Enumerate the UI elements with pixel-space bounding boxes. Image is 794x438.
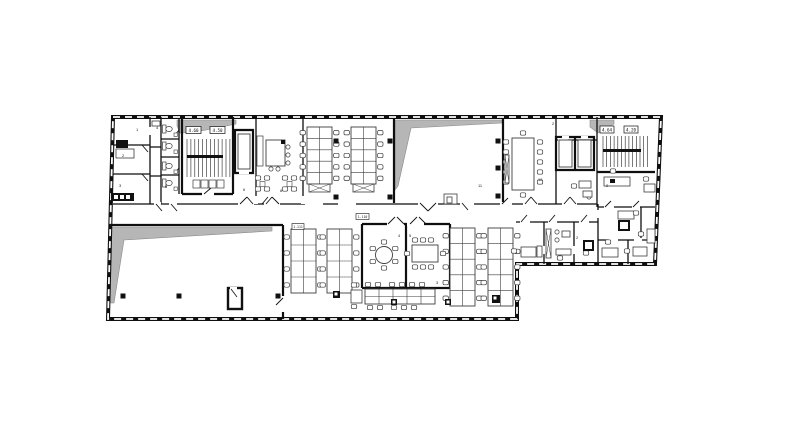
door-opening [338,202,356,206]
locker [201,180,208,188]
chair [284,283,289,287]
chair [411,305,416,309]
chair [638,232,643,236]
chair [320,267,325,271]
chair [334,176,339,180]
printer-face [494,297,497,300]
elevator-car [578,140,591,167]
door-opening [202,192,214,196]
desk [521,247,536,257]
door-opening [407,222,424,226]
door-leaf [142,174,148,181]
chair [520,131,525,135]
column [334,195,339,200]
floor-plan: 4.60 4.50 4.64 4.20 1.111 1.110 1 4 2 3 … [0,0,794,438]
chair [537,170,542,174]
chair [367,305,372,309]
chair [481,296,486,300]
elevator-car [559,140,572,167]
chair [370,259,375,263]
conference-table [512,138,534,190]
door-opening [500,202,512,206]
door-opening [254,196,258,204]
room-number: 3 [436,280,439,285]
chair [412,265,417,269]
stair-west-label-a: 4.60 [188,128,199,133]
chair [537,140,542,144]
door-opening [305,202,323,206]
door-opening [634,238,642,242]
door-opening [596,210,600,218]
hall-kiosk [228,288,242,309]
toilet-bowl [166,126,172,131]
chair [537,160,542,164]
chair [515,234,520,238]
chair [320,251,325,255]
chair [481,280,486,284]
desk [447,197,452,203]
casework-slit [114,195,118,199]
chair [381,266,386,270]
room-number: 6 [243,187,246,192]
chair [300,131,305,135]
chair [633,211,638,215]
chair [344,176,349,180]
chair [351,304,356,308]
chair [378,165,383,169]
chair [334,131,339,135]
chair [354,251,359,255]
chair [605,240,610,244]
chair [282,187,287,191]
chair [391,305,396,309]
column [121,294,126,299]
stair-rail [187,155,223,158]
column [388,195,393,200]
meeting-table [412,245,438,262]
stool [286,153,290,157]
chair [428,265,433,269]
elevator-car [238,134,250,169]
desk [537,246,542,257]
stair-west-label-b: 4.50 [212,128,223,133]
void-wedge-center-room [395,120,502,190]
chair [320,235,325,239]
locker [193,180,200,188]
stool [276,167,280,171]
column [496,166,501,171]
elevator-door-gap [562,136,569,139]
chair [583,251,588,255]
sink [174,150,177,153]
sink [174,187,177,190]
chair [284,251,289,255]
chair [300,165,305,169]
chair [264,176,269,180]
stool [269,167,273,171]
door-opening [148,127,152,135]
room-number: 2 [552,121,555,126]
chair [344,165,349,169]
room-number: 5 [409,233,412,238]
chair [557,256,562,260]
chair [351,283,356,287]
chair [284,267,289,271]
chair [377,305,382,309]
chair [370,246,375,250]
chair [291,176,296,180]
room-number: 12 [538,177,543,182]
stool [286,145,290,149]
column [388,139,393,144]
chair [284,235,289,239]
desk [647,229,655,243]
chair [334,165,339,169]
locker [217,180,224,188]
chair [334,153,339,157]
chair [399,282,404,286]
chair [481,234,486,238]
chair [401,305,406,309]
chair [404,251,409,255]
chair [393,259,398,263]
chair [515,280,520,284]
door-opening [169,202,177,206]
door-opening [579,220,589,224]
casework [610,179,615,183]
chair [440,251,445,255]
printer-face [393,301,396,304]
door-opening [572,246,576,254]
chair [443,234,448,238]
chair [300,176,305,180]
casework-slit [120,195,124,199]
chair [354,235,359,239]
void-wedge-south-hall [110,227,272,303]
chair [344,153,349,157]
desk [562,231,570,237]
room-number: 3 [119,183,122,188]
chair [409,282,414,286]
printer-face [335,293,338,296]
printer-face [447,301,450,304]
chair [378,153,383,157]
casework-slit [126,195,130,199]
desk [583,191,592,197]
phone-table [619,221,629,230]
chair [282,176,287,180]
chair [255,176,260,180]
elevator-door-gap [581,136,588,139]
zone-label-b: 1.110 [358,215,368,219]
chair [365,282,370,286]
chair [300,153,305,157]
toilet-bowl [166,143,172,148]
column [496,194,501,199]
desk [633,247,647,256]
desk [556,249,571,255]
stool [286,161,290,165]
sink [174,133,177,136]
chair [481,249,486,253]
chair [503,150,508,154]
chair [344,131,349,135]
chair [378,176,383,180]
column [177,294,182,299]
casework [116,140,128,148]
chair [378,131,383,135]
single-desk [351,290,362,303]
room-number: 2 [576,235,579,240]
elevator-door-gap [239,171,249,174]
stool [555,238,559,242]
chair [291,187,296,191]
chair [571,184,576,188]
chair [428,238,433,242]
chair [393,246,398,250]
chair [503,140,508,144]
door-leaf [142,145,148,152]
round-table [376,247,393,264]
column [276,294,281,299]
chair [375,282,380,286]
chair [511,249,516,253]
chair [419,282,424,286]
room-number: 4 [398,233,401,238]
chair [515,296,520,300]
chair [354,267,359,271]
chair [481,265,486,269]
chair [344,142,349,146]
door-opening [301,196,305,204]
room-number: 11 [478,183,483,188]
chair [389,282,394,286]
side-table [260,182,265,187]
door-opening [460,202,474,206]
door-opening [542,246,546,254]
chair [381,240,386,244]
stair-rail [603,149,641,152]
chair [443,265,448,269]
side-table [287,182,292,187]
counter [257,136,263,166]
sink [174,170,177,173]
chair [643,177,648,181]
chair [443,280,448,284]
chair [520,193,525,197]
chair [412,238,417,242]
chair [300,142,305,146]
chair [420,238,425,242]
cooktop [281,140,285,144]
furniture [111,121,655,310]
chair [610,169,615,173]
floor-plan-canvas: 4.60 4.50 4.64 4.20 1.111 1.110 1 4 2 3 … [0,0,794,438]
room-number: 1 [136,127,139,132]
chair [537,150,542,154]
toilet-bowl [166,163,172,168]
chair [515,265,520,269]
chair [255,187,260,191]
chair [264,187,269,191]
zone-label-a: 1.111 [293,225,303,229]
desk [116,149,134,158]
chair [378,142,383,146]
chair [420,265,425,269]
desk [618,211,634,219]
desk [644,184,655,192]
phone-table [584,241,593,250]
stair-east-label-b: 4.20 [626,127,637,132]
desk [579,181,591,188]
column [496,139,501,144]
chair [320,283,325,287]
column [334,139,339,144]
stair-east-label-a: 4.64 [602,127,613,132]
chair [624,249,629,253]
stool [555,230,559,234]
desk [602,248,618,257]
